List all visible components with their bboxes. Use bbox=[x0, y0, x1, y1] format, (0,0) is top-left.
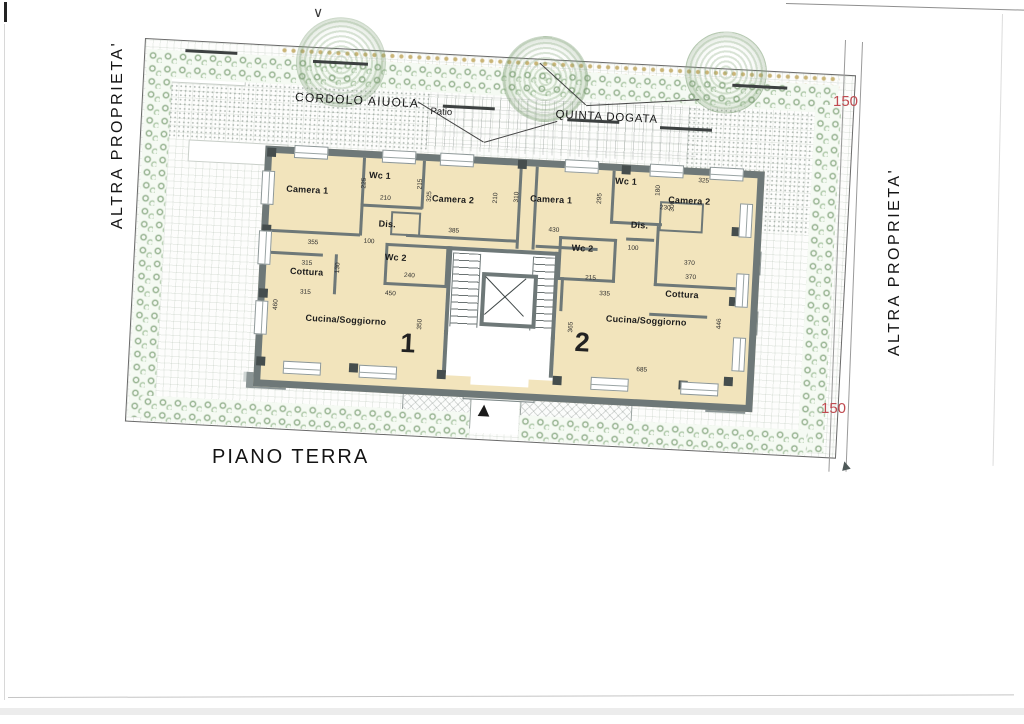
shrub-border-bottom-right bbox=[518, 415, 807, 455]
interior-wall bbox=[268, 229, 360, 237]
setback-dim-top: 150 bbox=[833, 93, 858, 110]
french-window bbox=[590, 377, 629, 392]
entrance-arrow: ▲ bbox=[473, 399, 494, 423]
window bbox=[735, 273, 750, 308]
interior-wall bbox=[383, 243, 388, 285]
dimension-label: 430 bbox=[548, 226, 559, 234]
dimension-label: 100 bbox=[363, 238, 374, 246]
dimension-label: 370 bbox=[685, 274, 696, 282]
window bbox=[731, 337, 746, 372]
elevator-shaft bbox=[479, 272, 538, 329]
room-label: Camera 1 bbox=[530, 193, 573, 205]
elevator-x-line bbox=[484, 278, 526, 314]
dimension-label: 240 bbox=[404, 272, 415, 280]
wall-pillar bbox=[267, 148, 276, 157]
stairs-left-flight bbox=[449, 252, 481, 327]
apartment-number: 2 bbox=[574, 327, 591, 359]
wall-pillar bbox=[256, 356, 265, 365]
scan-border-left bbox=[4, 24, 5, 700]
interior-wall bbox=[559, 277, 564, 311]
window bbox=[565, 159, 600, 174]
left-property-label: ALTRA PROPRIETA' bbox=[109, 41, 127, 229]
room-label: Cucina/Soggiorno bbox=[305, 313, 386, 327]
french-window bbox=[359, 365, 398, 380]
room-label: Wc 2 bbox=[571, 243, 593, 254]
interior-wall bbox=[559, 236, 617, 242]
site-plan: CORDOLO AIUOLA Patio QUINTA DOGATA ▲ Cam… bbox=[125, 38, 856, 459]
dimension-label: 295 bbox=[596, 193, 604, 204]
dimension-label: 355 bbox=[307, 239, 318, 247]
window bbox=[382, 150, 417, 165]
room-label: Wc 1 bbox=[615, 176, 637, 187]
interior-wall bbox=[383, 282, 447, 288]
setback-dim-bottom: 150 bbox=[821, 400, 846, 417]
wall-pillar bbox=[622, 165, 631, 174]
dimension-label: 225 bbox=[360, 177, 368, 188]
interior-wall bbox=[612, 239, 617, 283]
dimension-label: 325 bbox=[698, 177, 709, 185]
interior-wall bbox=[385, 243, 449, 249]
window bbox=[294, 145, 329, 160]
patio-label: Patio bbox=[430, 106, 452, 118]
dimension-label: 215 bbox=[416, 178, 424, 189]
window bbox=[257, 230, 272, 265]
room-label: Cottura bbox=[665, 289, 699, 301]
dimension-label: 450 bbox=[385, 290, 396, 298]
floor-plan-page: { "drawing_title": "PIANO TERRA", "site"… bbox=[0, 0, 1024, 724]
dimension-label: 215 bbox=[585, 274, 596, 282]
window bbox=[254, 300, 269, 335]
scan-tick-top-left bbox=[4, 2, 7, 22]
wall-pillar bbox=[349, 363, 358, 372]
interior-wall bbox=[654, 226, 660, 286]
dimension-label: 300 bbox=[669, 201, 677, 212]
scan-border-bottom-band bbox=[0, 708, 1024, 715]
interior-wall bbox=[267, 251, 323, 257]
dimension-label: 446 bbox=[716, 318, 724, 329]
dimension-label: 350 bbox=[416, 319, 424, 330]
interior-wall bbox=[359, 158, 366, 236]
room-label: Dis. bbox=[631, 220, 649, 231]
access-arrow: ▲ bbox=[836, 455, 855, 475]
room-label: Cottura bbox=[290, 266, 324, 278]
dimension-label: 315 bbox=[300, 288, 311, 296]
interior-wall bbox=[333, 254, 338, 294]
wall-pillar bbox=[259, 288, 268, 297]
room-label: Dis. bbox=[378, 218, 396, 229]
interior-wall bbox=[406, 234, 518, 243]
section-mark: ∨ bbox=[313, 4, 323, 21]
dimension-label: 210 bbox=[492, 192, 500, 203]
room-label: Camera 1 bbox=[286, 184, 329, 196]
room-label: Camera 2 bbox=[432, 193, 475, 205]
interior-wall bbox=[360, 204, 422, 210]
interior-wall bbox=[549, 336, 555, 378]
dimension-label: 385 bbox=[448, 227, 459, 235]
window bbox=[738, 203, 753, 238]
building: Camera 1Wc 1Camera 2Dis.Wc 2CotturaCucin… bbox=[253, 145, 765, 412]
wall-pillar bbox=[724, 377, 733, 386]
dimension-label: 335 bbox=[599, 290, 610, 298]
interior-wall bbox=[515, 166, 522, 249]
dimension-label: 685 bbox=[636, 366, 647, 374]
dimension-label: 370 bbox=[684, 260, 695, 268]
scan-border-top-right bbox=[786, 3, 1024, 11]
french-window bbox=[283, 361, 322, 376]
dimension-label: 325 bbox=[426, 191, 434, 202]
dimension-label: 315 bbox=[301, 260, 312, 268]
floor-title: PIANO TERRA bbox=[212, 446, 369, 469]
scan-border-right bbox=[993, 14, 1003, 466]
dimension-label: 130 bbox=[334, 262, 342, 273]
window bbox=[709, 167, 744, 182]
dimension-label: 210 bbox=[380, 195, 391, 203]
window bbox=[649, 164, 684, 179]
dimension-label: 180 bbox=[654, 185, 662, 196]
dimension-label: 100 bbox=[627, 245, 638, 253]
room-label: Wc 1 bbox=[369, 170, 391, 181]
window bbox=[260, 170, 275, 205]
apartment-number: 1 bbox=[400, 328, 417, 360]
wall-pillar bbox=[552, 376, 561, 385]
interior-wall bbox=[531, 167, 538, 250]
dimension-label: 365 bbox=[567, 322, 575, 333]
interior-wall bbox=[626, 237, 654, 241]
right-property-label: ALTRA PROPRIETA' bbox=[886, 168, 904, 356]
scan-border-bottom bbox=[8, 694, 1014, 698]
room-label: Wc 2 bbox=[385, 252, 407, 263]
shrub-border-left bbox=[128, 49, 173, 418]
entrance-door-gap bbox=[470, 369, 529, 388]
dimension-label: 460 bbox=[272, 299, 280, 310]
french-window bbox=[680, 382, 719, 397]
dimension-label: 310 bbox=[513, 191, 521, 202]
window bbox=[440, 153, 475, 168]
wall-pillar bbox=[518, 160, 527, 169]
wall-pillar bbox=[437, 370, 446, 379]
